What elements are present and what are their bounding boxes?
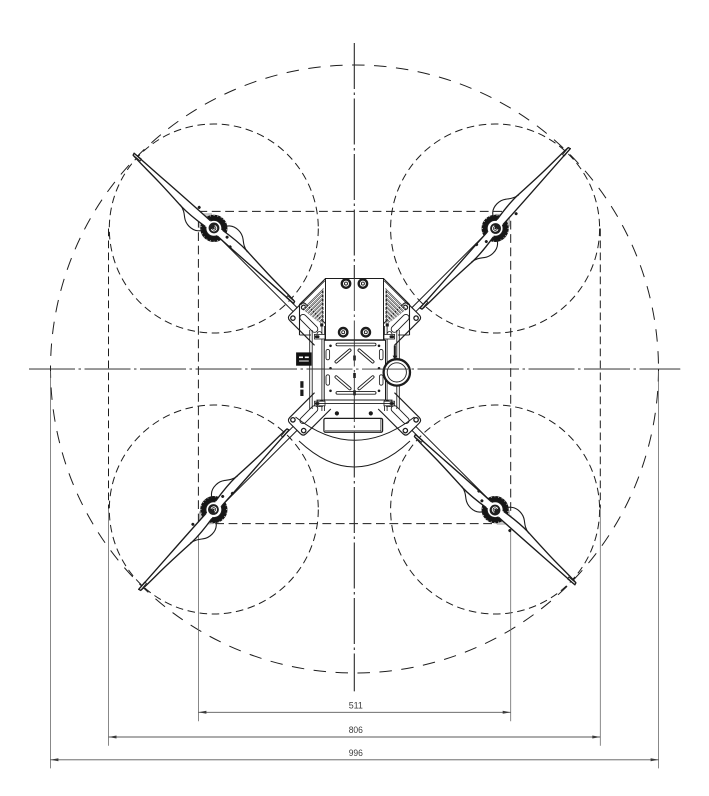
svg-text:511: 511 — [349, 701, 363, 712]
svg-text:806: 806 — [349, 725, 363, 736]
svg-text:996: 996 — [349, 748, 363, 759]
